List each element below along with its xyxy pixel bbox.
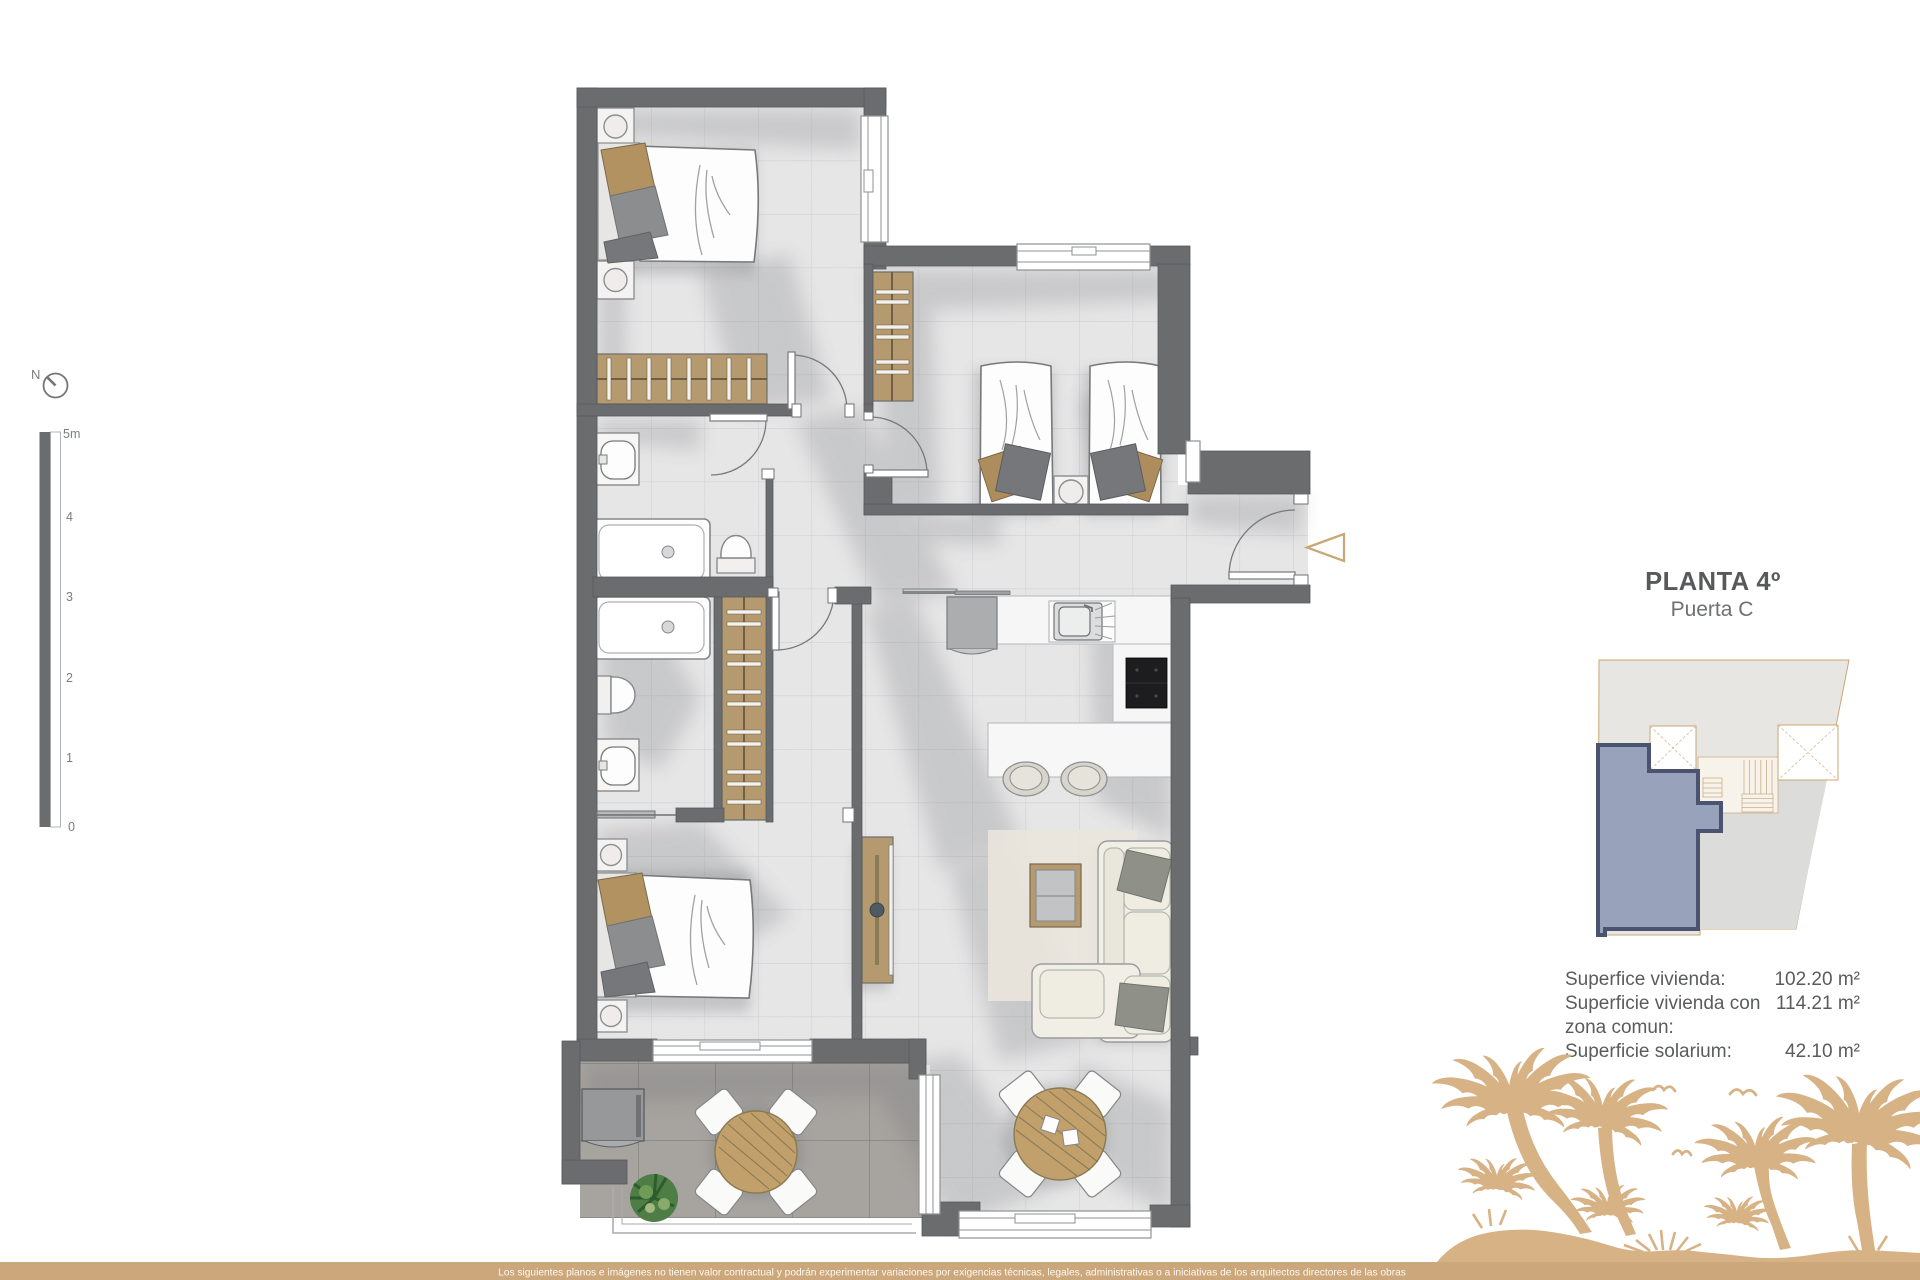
svg-text:5m: 5m (63, 427, 80, 441)
svg-text:PLANTA 4º: PLANTA 4º (1645, 568, 1781, 596)
svg-text:Los siguientes planos e imágen: Los siguientes planos e imágenes no tien… (498, 1268, 1406, 1279)
svg-text:Superficie vivienda con: Superficie vivienda con (1565, 993, 1760, 1014)
svg-text:4: 4 (66, 510, 73, 524)
svg-text:Puerta C: Puerta C (1671, 598, 1754, 621)
svg-text:N: N (31, 367, 40, 382)
svg-text:1: 1 (66, 751, 73, 765)
svg-text:zona comun:: zona comun: (1565, 1017, 1674, 1038)
svg-text:Superficie solarium:: Superficie solarium: (1565, 1041, 1732, 1062)
svg-text:2: 2 (66, 671, 73, 685)
svg-text:42.10 m²: 42.10 m² (1785, 1041, 1860, 1062)
svg-text:Superfice vivienda:: Superfice vivienda: (1565, 969, 1726, 990)
svg-text:102.20 m²: 102.20 m² (1774, 969, 1860, 990)
svg-text:0: 0 (68, 820, 75, 834)
svg-text:114.21 m²: 114.21 m² (1776, 993, 1860, 1014)
svg-text:3: 3 (66, 590, 73, 604)
